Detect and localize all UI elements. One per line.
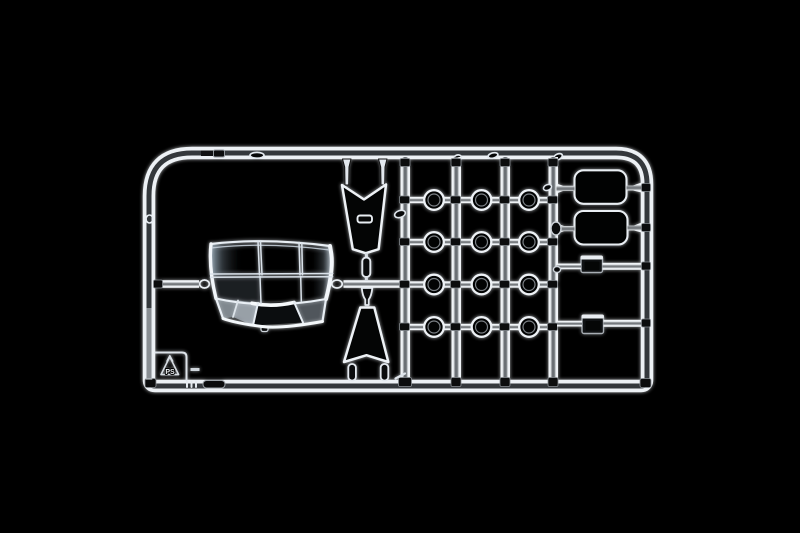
svg-text:PS: PS bbox=[165, 369, 175, 376]
